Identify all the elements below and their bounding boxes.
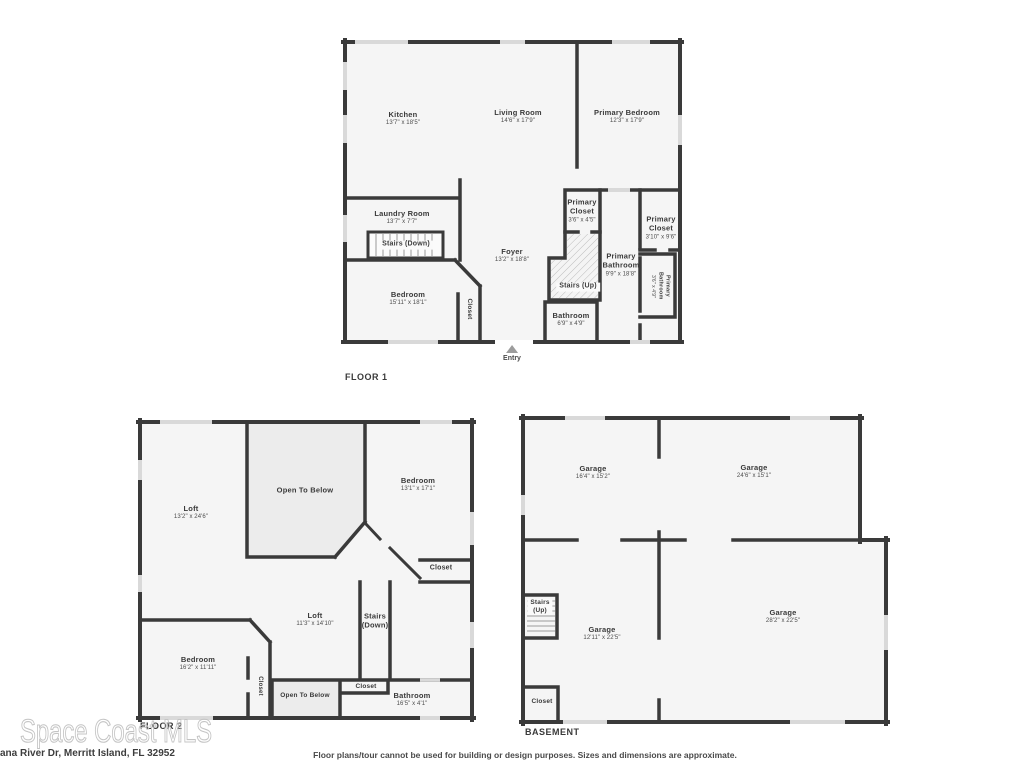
entry-label: Entry bbox=[503, 355, 521, 362]
room-label-stairs-down-f1: Stairs (Down) bbox=[379, 241, 433, 250]
room-label-garage-a: Garage 16'4" x 15'2" bbox=[576, 464, 610, 482]
property-address: ana River Dr, Merritt Island, FL 32952 bbox=[0, 748, 175, 759]
room-label-stairs-up-f1: Stairs (Up) bbox=[556, 283, 600, 292]
room-label-bathroom-f1: Bathroom 6'9" x 4'9" bbox=[552, 311, 589, 329]
floor1-title: FLOOR 1 bbox=[345, 372, 388, 382]
room-label-stairs-down-f2: Stairs (Down) bbox=[362, 612, 389, 631]
room-label-garage-c: Garage 12'11" x 22'5" bbox=[583, 625, 620, 643]
room-label-garage-b: Garage 24'6" x 15'1" bbox=[737, 463, 771, 481]
room-label-bathroom-f2: Bathroom 16'5" x 4'1" bbox=[393, 691, 430, 709]
floor2-plan bbox=[133, 416, 478, 728]
room-label-kitchen: Kitchen 13'7" x 18'5" bbox=[386, 110, 420, 128]
room-label-primary-closet-a: Primary Closet 3'6" x 4'5" bbox=[559, 197, 605, 224]
room-label-closet-c-f2: Closet bbox=[355, 683, 376, 691]
room-label-garage-d: Garage 28'2" x 22'5" bbox=[766, 608, 800, 626]
room-label-bedroom-a-f2: Bedroom 13'1" x 17'1" bbox=[401, 476, 435, 494]
room-label-primary-bedroom: Primary Bedroom 12'3" x 17'9" bbox=[594, 108, 660, 126]
room-label-primary-bathroom: Primary Bathroom 9'9" x 18'8" bbox=[598, 251, 644, 278]
room-label-bedroom-f1: Bedroom 15'11" x 18'1" bbox=[389, 290, 426, 308]
floor2-title: FLOOR 2 bbox=[140, 721, 183, 731]
basement-title: BASEMENT bbox=[525, 727, 580, 737]
room-label-laundry-room: Laundry Room 13'7" x 7'7" bbox=[374, 209, 429, 227]
room-label-living-room: Living Room 14'6" x 17'9" bbox=[494, 108, 542, 126]
room-label-primary-bathroom-small: Primary Bathroom 3'6" x 4'9" bbox=[650, 264, 671, 308]
entry-arrow-icon bbox=[506, 345, 518, 353]
room-label-foyer: Foyer 13'2" x 18'8" bbox=[495, 247, 529, 265]
entry-marker: Entry bbox=[503, 345, 521, 362]
floorplan-page: Kitchen 13'7" x 18'5" Living Room 14'6" … bbox=[0, 0, 1024, 768]
room-label-closet-f1: Closet bbox=[465, 298, 473, 319]
room-label-stairs-up-basement: Stairs (Up) bbox=[527, 599, 552, 615]
basement-plan bbox=[518, 412, 896, 728]
disclaimer-text: Floor plans/tour cannot be used for buil… bbox=[300, 750, 750, 760]
room-label-bedroom-b-f2: Bedroom 16'2" x 11'11" bbox=[180, 655, 217, 673]
room-label-closet-basement: Closet bbox=[531, 698, 552, 706]
room-label-open-to-below-b: Open To Below bbox=[280, 692, 329, 700]
room-label-loft-a: Loft 13'2" x 24'6" bbox=[174, 504, 208, 522]
room-label-loft-b: Loft 11'3" x 14'10" bbox=[296, 611, 333, 629]
room-label-open-to-below-a: Open To Below bbox=[277, 485, 334, 494]
room-label-primary-closet-b: Primary Closet 3'10" x 9'6" bbox=[638, 214, 684, 241]
room-label-closet-b-f2: Closet bbox=[255, 676, 263, 696]
room-label-closet-a-f2: Closet bbox=[430, 565, 453, 574]
